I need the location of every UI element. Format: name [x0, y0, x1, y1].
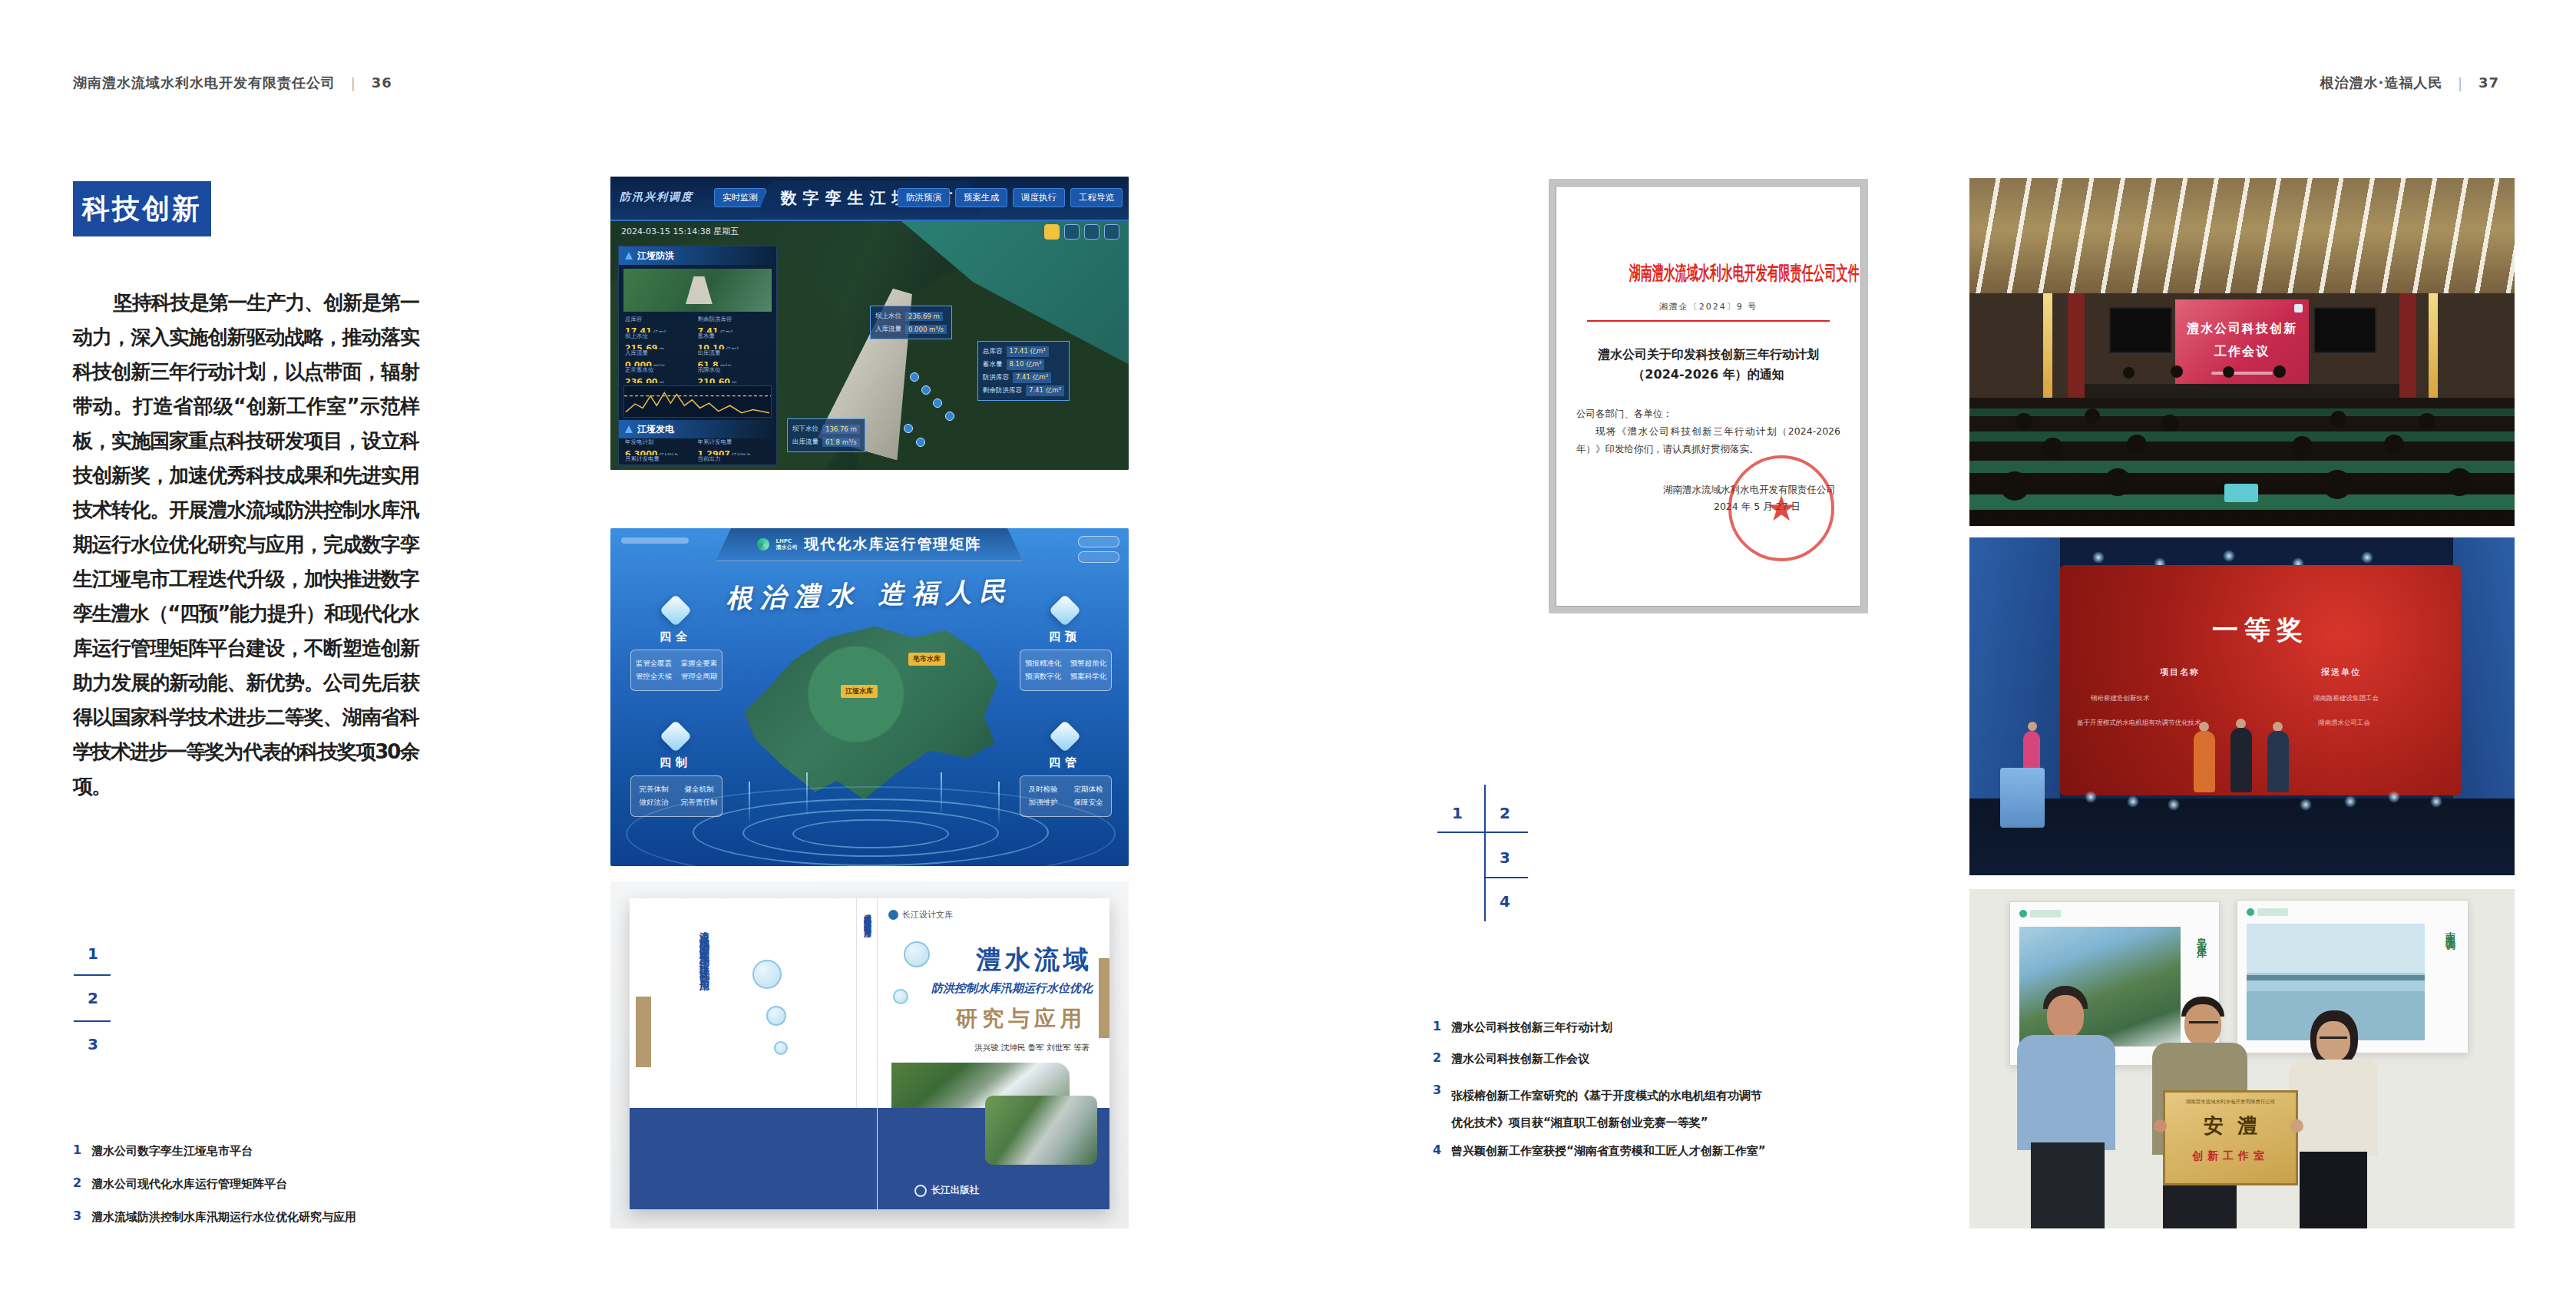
water-bubble: [752, 960, 782, 989]
stat-unit: m: [659, 380, 664, 383]
tooltip-row: 总库容17.41 亿m³: [983, 345, 1064, 358]
green-table-row: [1969, 461, 2515, 473]
caption-number: 2: [73, 1175, 91, 1190]
panelist-silhouette: [2273, 365, 2286, 378]
presenter-suit: [2230, 728, 2252, 792]
awardee-navy: [2267, 731, 2289, 792]
stat-cell: 月累计发电量3259.21万kW·h: [625, 455, 698, 465]
man1-trousers: [2031, 1142, 2105, 1228]
caption-text: 张桵榕创新工作室研究的《基于开度模式的水电机组有功调节优化技术》项目获“湘直职工…: [1451, 1083, 1767, 1136]
caption-number: 3: [73, 1208, 91, 1223]
tooltip-row: 坝下水位136.76 m: [792, 422, 860, 435]
section-badge: 科技创新: [73, 181, 211, 236]
group-panel: 监管全覆盖 掌握全要素 管控全天候 管理全周期: [630, 650, 723, 691]
book-spread: 澧水流域防洪控制水库汛期运行水位优化研究与应用 澧水流域防洪控制水库汛期运行水位…: [630, 898, 1109, 1209]
marker-divider: [1437, 832, 1528, 833]
marker-divider: [74, 974, 111, 976]
led-screen: 一等奖 项目名称 报送单位 钢桁桥建造创新技术 湖南路桥建设集团工会 基于开度模…: [2060, 565, 2461, 795]
poster-logo-text: [2257, 908, 2288, 916]
stat-cell: 年累计发电量1.2907亿kW·h: [698, 438, 771, 455]
document-red-rule: [1587, 320, 1830, 322]
group-item: 做好法治: [640, 798, 669, 808]
figure-marker-4: 4: [1490, 892, 1520, 911]
nav-button: 实时监测: [714, 188, 766, 207]
stat-cell: 正常蓄水位236.00m: [625, 366, 698, 383]
audience-head: [2330, 411, 2346, 427]
woman-face: [2316, 1021, 2350, 1061]
marker-divider: [74, 1020, 111, 1022]
award-headline: 一等奖: [2060, 613, 2461, 648]
column-header-project: 项目名称: [2160, 666, 2200, 678]
floor-light: [2344, 795, 2356, 808]
audience-head: [2104, 468, 2131, 496]
left-page-number: 36: [372, 74, 392, 91]
figure-marker-2: 2: [74, 989, 112, 1007]
tooltip-row: 入库流量0.000 m³/s: [875, 322, 947, 336]
document-page: 湖南澧水流域水利水电开发有限责任公司文件 湘澧企〔2024〕9 号 澧水公司关于…: [1556, 186, 1861, 607]
woman-white-shirt: [2289, 1060, 2378, 1156]
stat-cell: 出库流量61.8m³/s: [698, 349, 771, 366]
floor-light: [2388, 791, 2400, 803]
nav-button: 防洪预演: [898, 188, 950, 207]
book-title-sub: 防洪控制水库汛期运行水位优化: [881, 981, 1093, 996]
stat-value: 215.69: [625, 343, 657, 349]
audience-head: [2292, 436, 2313, 457]
audience-head: [2127, 435, 2147, 455]
tooltip-row: 蓄水量8.10 亿m³: [983, 358, 1064, 371]
user-icon: [1044, 224, 1060, 240]
map-pin: [910, 372, 919, 382]
floor-light: [2127, 795, 2139, 808]
tooltip-row: 出库流量61.8 m³/s: [792, 435, 860, 448]
tooltip-value: 0.000 m³/s: [905, 325, 947, 334]
stat-value: 7.41: [698, 326, 719, 332]
award-row-unit: 湖南路桥建设集团工会: [2313, 694, 2379, 703]
spine-title: 澧水流域防洪控制水库汛期运行水位优化研究与应用: [862, 908, 872, 1099]
twin-toolbar-icons: [1044, 224, 1119, 240]
screen-title-line1: 澧水公司科技创新: [2175, 321, 2309, 337]
flood-stats: 总库容17.41亿m³ 剩余防洪库容7.41亿m³ 坝上水位215.69m 蓄水…: [619, 316, 776, 383]
tooltip-label: 入库流量: [875, 325, 901, 334]
stat-cell: 总库容17.41亿m³: [625, 316, 698, 332]
front-tan-block: [1099, 958, 1109, 1038]
audience-head: [2000, 471, 2029, 501]
tooltip-value: 8.10 亿m³: [1007, 359, 1045, 370]
caption-row: 4 曾兴颖创新工作室获授“湖南省直劳模和工匠人才创新工作室”: [1433, 1142, 1786, 1160]
left-header-title: 湖南澧水流域水利水电开发有限责任公司: [73, 74, 336, 91]
document-number: 湘澧企〔2024〕9 号: [1576, 301, 1840, 312]
figure-digital-twin-platform: 防汛兴利调度 实时监测 洪水预报 防洪预警 数字孪生江垭皂市 防洪预演 预案生成…: [610, 177, 1129, 470]
caption-number: 3: [1433, 1083, 1451, 1097]
innovation-plaque: 湖南澧水流域水利水电开发有限责任公司 安澧 创新工作室: [2163, 1090, 2298, 1185]
tooltip-value: 236.69 m: [905, 312, 943, 321]
light-pillar: [998, 782, 1000, 826]
publisher-logo-icon: [914, 1185, 927, 1197]
document-title: 澧水公司关于印发科技创新三年行动计划（2024-2026 年）的通知: [1593, 345, 1824, 385]
audience-head: [2085, 408, 2100, 424]
magazine-spread: 湖南澧水流域水利水电开发有限责任公司｜36 根治澧水·造福人民｜37 科技创新 …: [0, 0, 2576, 1306]
flood-panel-title: 江垭防洪: [619, 246, 776, 265]
stat-label: 当前出力: [698, 455, 771, 462]
woman-trousers: [2300, 1152, 2367, 1228]
tooltip-value: 17.41 亿m³: [1007, 346, 1049, 357]
figure-marker-1: 1: [74, 944, 112, 963]
twin-datetime: 2024-03-15 15:14:38 星期五: [621, 226, 739, 237]
photo-plaque-group: 皂市水库 南水北调 湖南澧水流域水利水电开发有限责任公司 安澧: [1969, 889, 2515, 1228]
audience-head: [2015, 413, 2032, 430]
group-panel: 预报精准化 预警超前化 预演数字化 预案科学化: [1020, 650, 1112, 691]
stat-value: 61.8: [698, 360, 719, 366]
figure-matrix-platform: LHPC 澧水公司 现代化水库运行管理矩阵 根治澧水 造福人民 皂市水库 江垭水…: [610, 528, 1129, 866]
caption-number: 4: [1433, 1142, 1451, 1157]
stat-value: 1.2907: [698, 449, 730, 455]
stat-cell: 汛限水位210.60m: [698, 366, 771, 383]
panelist-silhouette: [2123, 367, 2135, 379]
map-pin: [916, 438, 925, 447]
stat-label: 年发电计划: [625, 438, 698, 445]
stage-spotlight: [2223, 550, 2235, 562]
back-vertical-title: 澧水流域防洪控制水库汛期运行水位优化研究与应用: [697, 923, 711, 1088]
nav-button: 调度执行: [1013, 188, 1065, 207]
tooltip-value: 61.8 m³/s: [822, 438, 860, 447]
document-body: 现将《澧水公司科技创新三年行动计划（2024-2026 年）》印发给你们，请认真…: [1576, 422, 1840, 458]
poster-right-caption: 南水北调: [2443, 924, 2457, 1016]
ceiling-lights: [1969, 178, 2515, 293]
tooltip-value: 136.76 m: [822, 425, 860, 434]
floor-light: [2085, 791, 2097, 803]
marker-divider: [1485, 877, 1528, 878]
stat-label: 正常蓄水位: [625, 366, 698, 373]
awardee-orange: [2194, 731, 2215, 792]
award-row-project: 基于开度模式的水电机组有功调节优化技术: [2077, 719, 2201, 728]
watershed-map: [733, 619, 1006, 807]
audience-head: [2445, 468, 2473, 496]
logo-abbr: LHPC: [776, 538, 798, 544]
screen-date-line: [2211, 372, 2273, 375]
caption-row: 3 澧水流域防洪控制水库汛期运行水位优化研究与应用: [73, 1208, 503, 1226]
tooltip-label: 总库容: [983, 347, 1003, 356]
audience-head: [2161, 415, 2178, 431]
header-divider: ｜: [2453, 74, 2468, 91]
power-panel-title: 江垭发电: [619, 420, 776, 438]
stat-cell: 入库流量0.000m³/s: [625, 349, 698, 366]
stat-cell: 坝上水位215.69m: [625, 332, 698, 349]
plaque-org-line: 湖南澧水流域水利水电开发有限责任公司: [2165, 1099, 2296, 1106]
lhpc-logo-text: LHPC 澧水公司: [776, 538, 798, 551]
figure-marker-1: 1: [1442, 804, 1473, 822]
red-pillar: [2399, 293, 2416, 398]
group-name: 四管: [1019, 755, 1111, 770]
series-name: 长江设计文库: [902, 909, 953, 921]
caption-row: 2 澧水公司科技创新工作会议: [1433, 1050, 1786, 1068]
figure-marker-2: 2: [1490, 804, 1520, 822]
globe-icon: [888, 910, 898, 920]
layers-icon: [1064, 224, 1080, 240]
award-row-unit: 湖南澧水公司工会: [2318, 719, 2370, 728]
twin-corner-label: 防汛兴利调度: [620, 190, 693, 204]
man1-blue-polo: [2017, 1035, 2115, 1150]
podium: [2000, 768, 2045, 828]
stat-value: 0.000: [625, 360, 652, 366]
group-item: 健全机制: [685, 785, 714, 795]
stage-floor: [1969, 798, 2515, 875]
panelist-silhouette: [2223, 366, 2234, 378]
stat-value: 236.00: [625, 377, 657, 383]
group-item: 完善体制: [640, 785, 669, 795]
flood-panel: 江垭防洪 总库容17.41亿m³ 剩余防洪库容7.41亿m³ 坝上水位215.6…: [618, 246, 777, 465]
holding-hand: [2154, 1119, 2167, 1132]
tooltip-label: 蓄水量: [983, 360, 1003, 369]
book-title-tail: 研究与应用: [894, 1004, 1086, 1033]
column-header-unit: 报送单位: [2321, 666, 2361, 678]
plaque-main-text: 安澧: [2165, 1113, 2296, 1139]
man2-glasses: [2189, 1021, 2218, 1023]
lhpc-logo-icon: [2247, 908, 2254, 916]
publisher-name: 长江出版社: [931, 1184, 980, 1197]
floor-light: [2430, 795, 2442, 808]
light-pillar: [941, 772, 942, 817]
matrix-weather-button: [1078, 536, 1119, 547]
panelist-silhouette: [2171, 365, 2183, 378]
plaque-sub-text: 创新工作室: [2165, 1149, 2296, 1163]
map-tag: 江垭水库: [841, 685, 878, 698]
poster-left-image: [2019, 927, 2181, 1046]
group-item: 预警超前化: [1070, 659, 1107, 669]
power-stats: 年发电计划6.3000亿kW·h 年累计发电量1.2907亿kW·h 月累计发电…: [619, 438, 776, 465]
poster-logo-text: [2030, 910, 2061, 918]
group-item: 管控全天候: [636, 672, 673, 682]
caption-row: 1 澧水公司科技创新三年行动计划: [1433, 1019, 1786, 1037]
stat-value: 210.60: [698, 377, 730, 383]
wall-light: [2429, 293, 2438, 398]
audience-head: [2042, 438, 2063, 458]
tooltip-label: 出库流量: [792, 438, 818, 447]
caption-row: 2 澧水公司现代化水库运行管理矩阵平台: [73, 1175, 472, 1193]
matrix-header: LHPC 澧水公司 现代化水库运行管理矩阵: [716, 528, 1023, 561]
woman-glasses: [2320, 1037, 2347, 1039]
publisher-mark: 长江出版社: [878, 1184, 1016, 1197]
book-front-cover: 长江设计文库 澧水流域 防洪控制水库汛期运行水位优化 研究与应用 洪兴骏 沈坤民…: [878, 898, 1109, 1209]
stat-label: 蓄水量: [698, 332, 771, 339]
downstream-tooltip: 坝下水位136.76 m 出库流量61.8 m³/s: [787, 418, 865, 452]
host-head: [2028, 722, 2037, 731]
light-pillar: [749, 782, 750, 826]
caption-text: 澧水流域防洪控制水库汛期运行水位优化研究与应用: [91, 1208, 356, 1226]
caption-text: 澧水公司科技创新三年行动计划: [1451, 1019, 1612, 1037]
ripple-ring: [792, 819, 949, 848]
map-pin: [933, 398, 942, 408]
man1-face: [2047, 995, 2084, 1038]
group-item: 预演数字化: [1025, 672, 1062, 682]
wall-light: [2043, 293, 2052, 398]
head-table: [2085, 384, 2399, 398]
marker-divider: [1484, 785, 1486, 921]
reservoir-tooltip: 总库容17.41 亿m³ 蓄水量8.10 亿m³ 防洪库容7.41 亿m³ 剩余…: [977, 341, 1070, 401]
group-item: 及时检验: [1029, 785, 1058, 795]
tooltip-row: 剩余防洪库容7.41 亿m³: [983, 384, 1064, 397]
official-document-photo: 湖南澧水流域水利水电开发有限责任公司文件 湘澧企〔2024〕9 号 澧水公司关于…: [1549, 179, 1868, 613]
bridge-deck: [2247, 975, 2425, 980]
group-name: 四预: [1019, 630, 1111, 644]
stat-label: 剩余防洪库容: [698, 316, 771, 322]
caption-number: 1: [1433, 1019, 1451, 1033]
series-logo: 长江设计文库: [888, 909, 953, 921]
side-tv: [2313, 307, 2376, 353]
stat-value: 17.41: [625, 326, 652, 332]
group-icon-zhi: [660, 720, 692, 752]
twin-nav-right: 防洪预演 预案生成 调度执行 工程导览: [898, 188, 1123, 207]
matrix-title: 现代化水库运行管理矩阵: [805, 534, 982, 554]
tooltip-label: 防洪库容: [983, 373, 1009, 382]
stat-cell: 年发电计划6.3000亿kW·h: [625, 438, 698, 455]
locate-icon: [1084, 224, 1100, 240]
right-page-header: 根治澧水·造福人民｜37: [2320, 74, 2499, 92]
stat-cell: 剩余防洪库容7.41亿m³: [698, 316, 771, 332]
caption-text: 曾兴颖创新工作室获授“湖南省直劳模和工匠人才创新工作室”: [1451, 1142, 1766, 1160]
group-item: 监管全覆盖: [636, 659, 673, 669]
figure-book-cover: 澧水流域防洪控制水库汛期运行水位优化研究与应用 澧水流域防洪控制水库汛期运行水位…: [610, 881, 1129, 1228]
screen-logo-icon: [2294, 304, 2303, 312]
group-item: 预报精准化: [1025, 659, 1062, 669]
caption-row: 3 张桵榕创新工作室研究的《基于开度模式的水电机组有功调节优化技术》项目获“湘直…: [1433, 1083, 1771, 1136]
stat-cell: 当前出力0.00MW: [698, 455, 771, 465]
water-bubble: [774, 1041, 788, 1055]
stage-spotlight: [2361, 551, 2373, 564]
audience-head: [2384, 435, 2404, 455]
red-pillar: [2068, 293, 2085, 398]
group-item: 预案科学化: [1070, 672, 1107, 682]
man2-face: [2184, 1004, 2221, 1046]
stat-value: 10.10: [698, 343, 725, 349]
figure-marker-3: 3: [74, 1035, 112, 1053]
group-item: 定期体检: [1074, 785, 1103, 795]
photo-innovation-meeting: 澧水公司科技创新 工作会议: [1969, 178, 2515, 526]
caption-text: 澧水公司科技创新工作会议: [1451, 1050, 1589, 1068]
stat-cell: 蓄水量10.10亿m³: [698, 332, 771, 349]
official-red-seal: ★: [1728, 455, 1834, 561]
header-divider: ｜: [346, 74, 361, 91]
document-salutation: 公司各部门、各单位：: [1576, 405, 1840, 422]
document-masthead: 湖南澧水流域水利水电开发有限责任公司文件: [1629, 260, 1787, 286]
caption-number: 1: [73, 1142, 91, 1157]
stat-unit: m: [732, 380, 737, 383]
stat-label: 月累计发电量: [625, 455, 698, 462]
caption-row: 1 澧水公司数字孪生江垭皂市平台: [73, 1142, 472, 1160]
audience-head: [2419, 413, 2435, 430]
right-page-number: 37: [2478, 74, 2499, 91]
floor-light: [2300, 798, 2312, 811]
lhpc-logo-icon: [757, 538, 769, 551]
floor-light: [2168, 798, 2180, 811]
upstream-tooltip: 坝上水位236.69 m 入库流量0.000 m³/s: [870, 306, 952, 339]
left-page-header: 湖南澧水流域水利水电开发有限责任公司｜36: [73, 74, 392, 92]
map-tag: 皂市水库: [908, 653, 945, 666]
group-name: 四制: [630, 755, 722, 770]
tooltip-value: 7.41 亿m³: [1013, 372, 1051, 383]
side-tv: [2109, 307, 2172, 353]
figure-marker-3: 3: [1490, 848, 1520, 867]
tooltip-value: 7.41 亿m³: [1026, 385, 1064, 396]
stat-value: 6.3000: [625, 449, 657, 455]
map-pin: [945, 412, 954, 421]
tooltip-row: 防洪库容7.41 亿m³: [983, 371, 1064, 384]
caption-text: 澧水公司现代化水库运行管理矩阵平台: [91, 1175, 287, 1193]
body-paragraph: 坚持科技是第一生产力、创新是第一动力，深入实施创新驱动战略，推动落实科技创新三年…: [73, 286, 418, 804]
star-icon: ★: [1765, 488, 1797, 529]
group-item: 保障安全: [1074, 798, 1103, 808]
light-pillar: [806, 772, 808, 817]
water-bubble: [766, 1006, 786, 1026]
award-row-project: 钢桁桥建造创新技术: [2091, 694, 2150, 703]
logo-name: 澧水公司: [776, 544, 798, 551]
back-blue-band: [630, 1108, 877, 1209]
powerhouse-photo: [985, 1096, 1097, 1165]
nav-button: 工程导览: [1070, 188, 1123, 207]
caption-number: 2: [1433, 1050, 1451, 1065]
group-name: 四全: [630, 630, 722, 644]
book-title-region: 澧水流域: [893, 943, 1093, 977]
tooltip-label: 坝下水位: [792, 425, 818, 434]
matrix-alert-button: [1078, 551, 1119, 563]
stage-spotlight: [2092, 551, 2105, 564]
meeting-screen: 澧水公司科技创新 工作会议: [2175, 299, 2309, 384]
tooltip-label: 剩余防洪库容: [983, 386, 1022, 395]
back-tan-block: [636, 997, 651, 1067]
right-header-title: 根治澧水·造福人民: [2320, 74, 2442, 91]
matrix-datetime: [621, 537, 689, 544]
stat-label: 总库容: [625, 316, 698, 322]
photo-award-ceremony: 一等奖 项目名称 报送单位 钢桁桥建造创新技术 湖南路桥建设集团工会 基于开度模…: [1969, 537, 2515, 875]
tooltip-label: 坝上水位: [875, 312, 901, 321]
map-pin: [921, 385, 931, 395]
book-authors: 洪兴骏 沈坤民 鲁军 刘世军 等著: [890, 1043, 1090, 1053]
stat-label: 入库流量: [625, 349, 698, 356]
dam-thumbnail: [623, 269, 772, 312]
group-item: 掌握全要素: [681, 659, 718, 669]
holding-hand: [2290, 1119, 2303, 1132]
water-level-chart: [623, 385, 772, 418]
stat-label: 坝上水位: [625, 332, 698, 339]
group-icon-guan: [1049, 720, 1081, 752]
group-item: 管理全周期: [681, 672, 718, 682]
tooltip-row: 坝上水位236.69 m: [875, 309, 947, 322]
caption-text: 澧水公司数字孪生江垭皂市平台: [91, 1142, 253, 1160]
stat-label: 年累计发电量: [698, 438, 771, 445]
lhpc-logo-icon: [2019, 910, 2027, 918]
alert-icon: [1104, 224, 1119, 240]
audience-head: [2323, 470, 2352, 499]
screen-title-line2: 工作会议: [2175, 344, 2309, 360]
stat-label: 汛限水位: [698, 366, 771, 373]
stat-label: 出库流量: [698, 349, 771, 356]
nav-button: 预案生成: [955, 188, 1007, 207]
map-pin: [904, 424, 913, 433]
tissue-box: [2224, 484, 2258, 502]
